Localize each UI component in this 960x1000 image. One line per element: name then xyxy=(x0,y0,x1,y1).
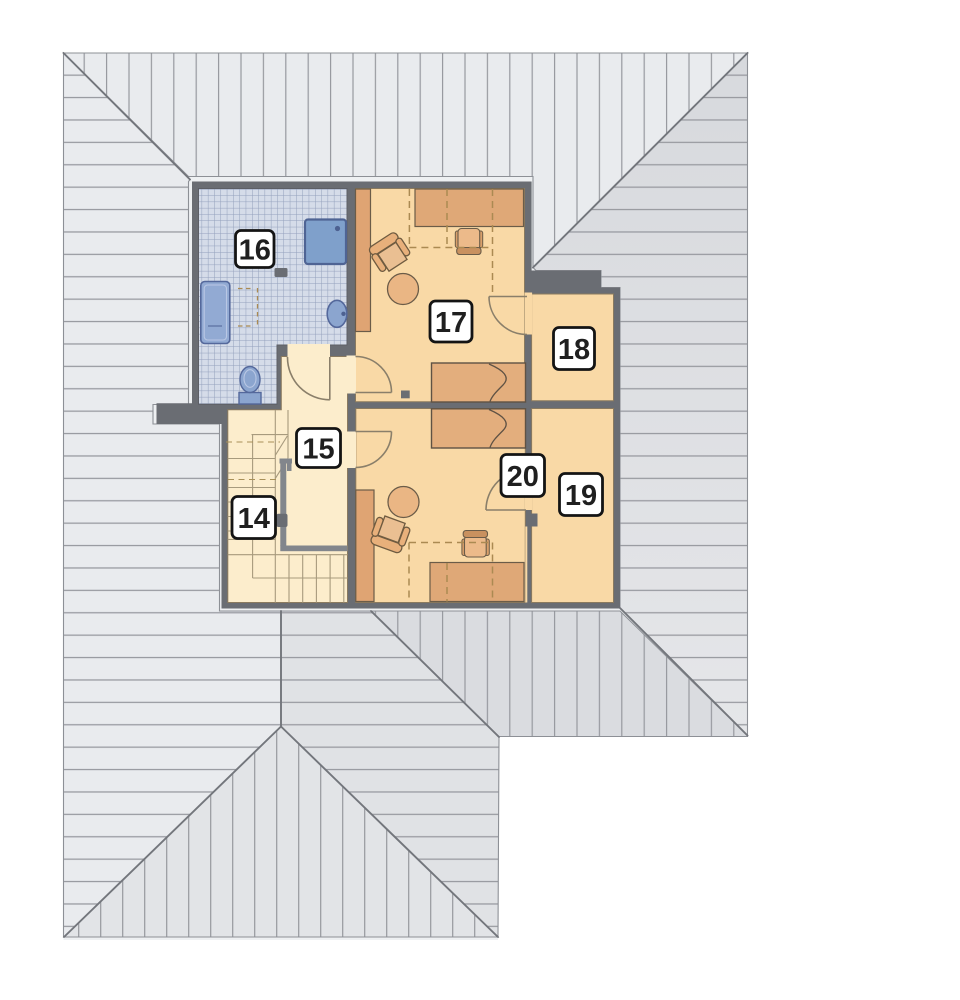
svg-text:15: 15 xyxy=(302,434,334,466)
svg-text:17: 17 xyxy=(435,307,467,339)
svg-text:18: 18 xyxy=(558,334,590,366)
svg-text:14: 14 xyxy=(238,503,270,535)
svg-text:19: 19 xyxy=(565,480,597,512)
svg-text:20: 20 xyxy=(507,461,539,493)
svg-text:16: 16 xyxy=(239,235,271,267)
